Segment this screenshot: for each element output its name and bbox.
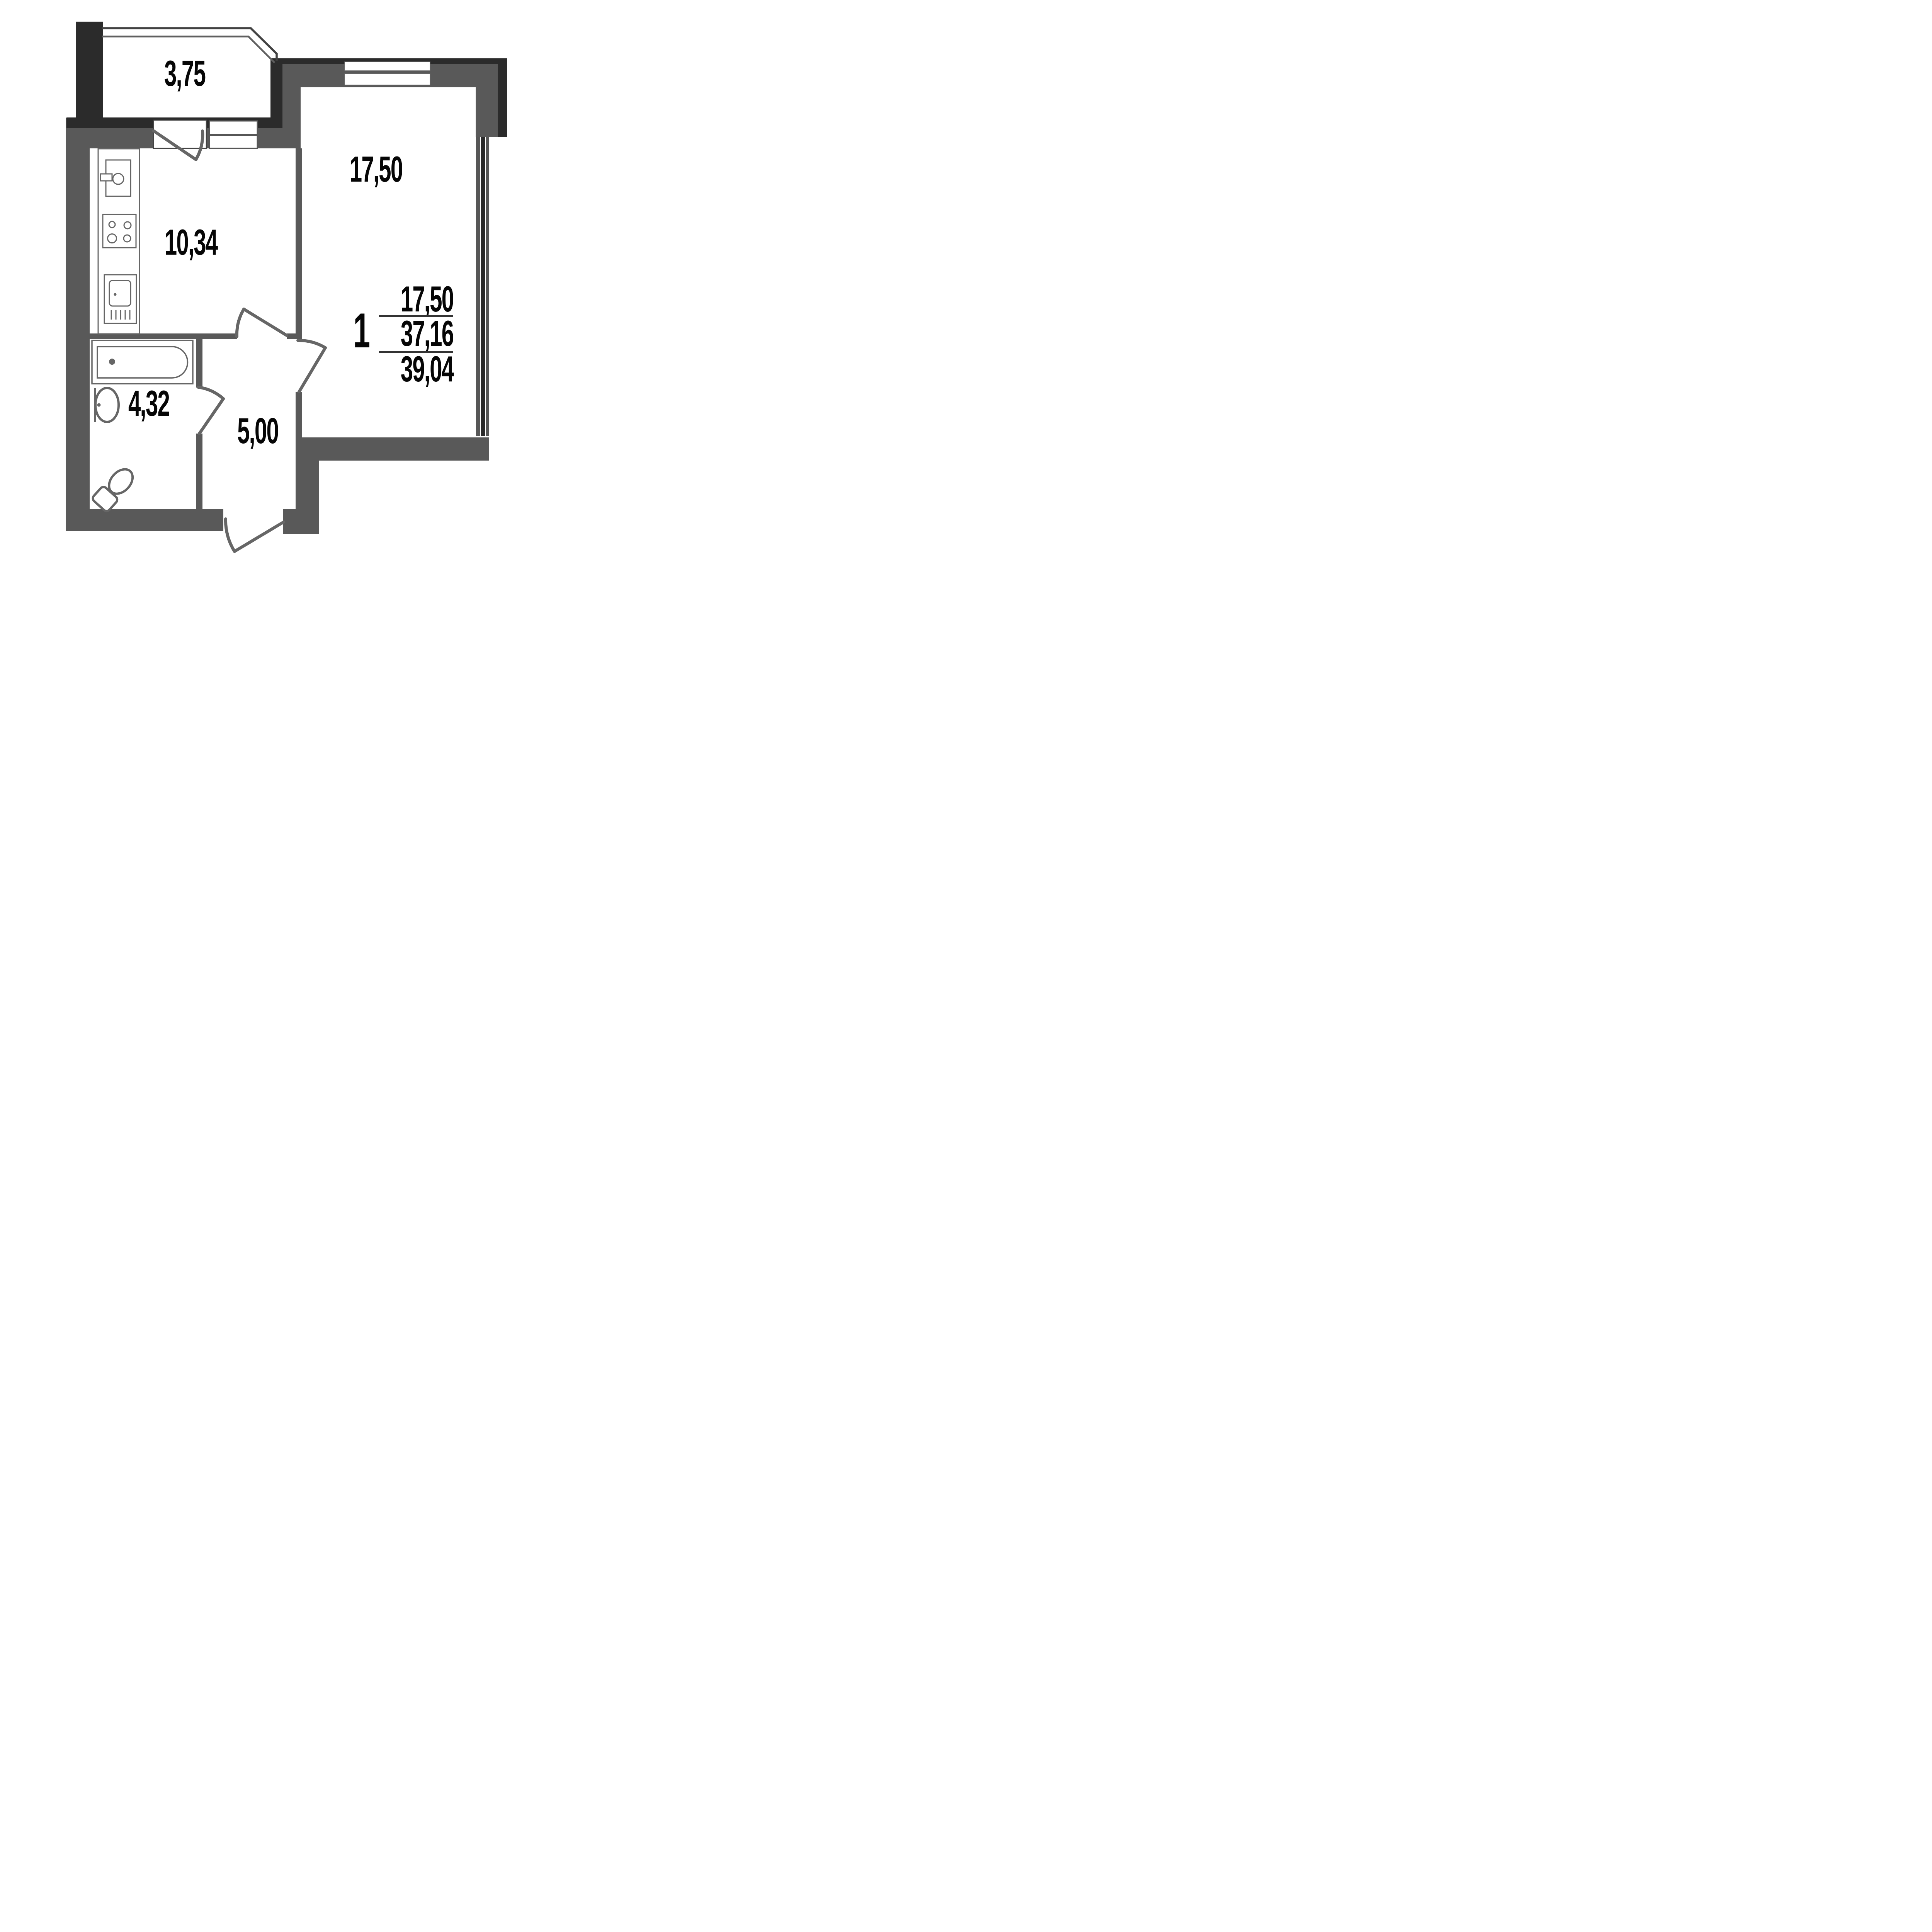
washing-machine xyxy=(104,275,136,323)
hallway-area-label: 5,00 xyxy=(237,410,278,452)
kitchen-area-label: 10,34 xyxy=(165,221,218,263)
rooms-count: 1 xyxy=(353,302,370,359)
bathtub xyxy=(92,340,193,384)
kitchen-sink xyxy=(100,160,131,196)
summary-total-area: 39,04 xyxy=(400,348,453,390)
entrance-door xyxy=(226,519,284,551)
bathroom-area-label: 4,32 xyxy=(128,383,169,424)
balcony-area-label: 3,75 xyxy=(164,53,205,94)
living-room-area-label: 17,50 xyxy=(350,148,403,190)
bathroom-door xyxy=(198,387,223,434)
living-room-door xyxy=(298,340,325,392)
stove xyxy=(103,214,136,248)
floor-plan-drawing xyxy=(0,0,571,571)
side-window xyxy=(476,137,489,436)
balcony-window xyxy=(209,121,257,148)
washbasin xyxy=(95,388,119,422)
kitchen-door xyxy=(237,309,287,337)
toilet xyxy=(91,464,138,512)
floor-plan: 3,75 10,34 17,50 4,32 5,00 1 17,50 37,16… xyxy=(0,0,571,571)
